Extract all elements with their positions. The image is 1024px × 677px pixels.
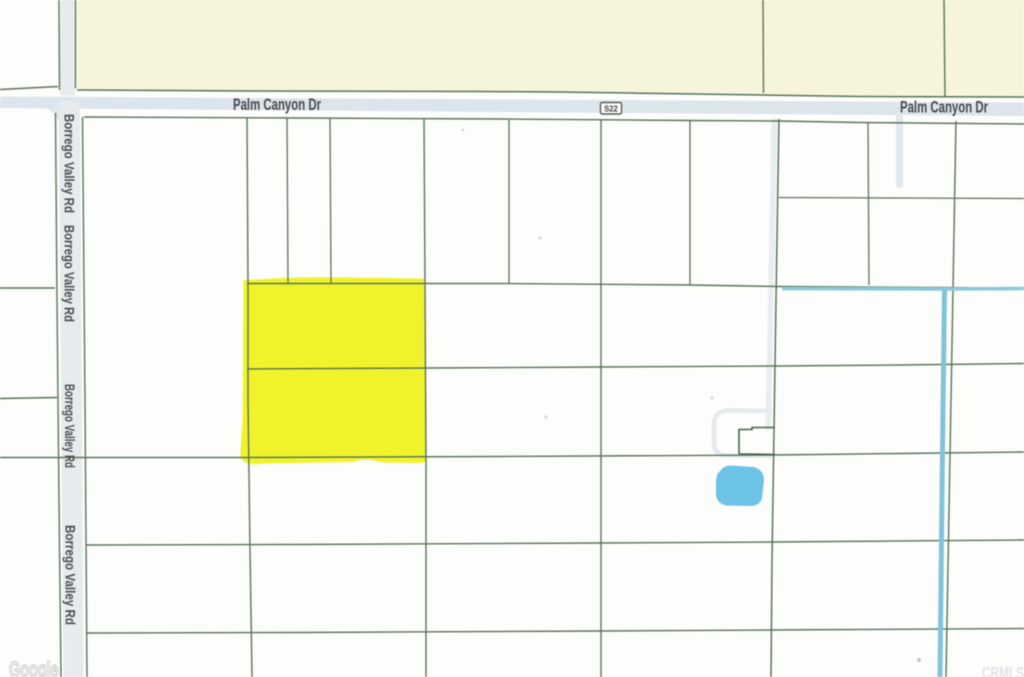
svg-text:Borrego Valley Rd: Borrego Valley Rd [63, 525, 79, 625]
svg-text:Google: Google [9, 657, 59, 677]
svg-text:Borrego Valley Rd: Borrego Valley Rd [62, 384, 78, 468]
svg-text:CRMLS: CRMLS [982, 664, 1024, 677]
svg-text:Palm Canyon Dr: Palm Canyon Dr [900, 99, 988, 117]
svg-text:Borrego Valley Rd: Borrego Valley Rd [62, 114, 78, 213]
svg-text:Palm Canyon Dr: Palm Canyon Dr [233, 96, 321, 114]
svg-text:Borrego Valley Rd: Borrego Valley Rd [62, 225, 78, 322]
svg-text:S22: S22 [604, 104, 618, 113]
